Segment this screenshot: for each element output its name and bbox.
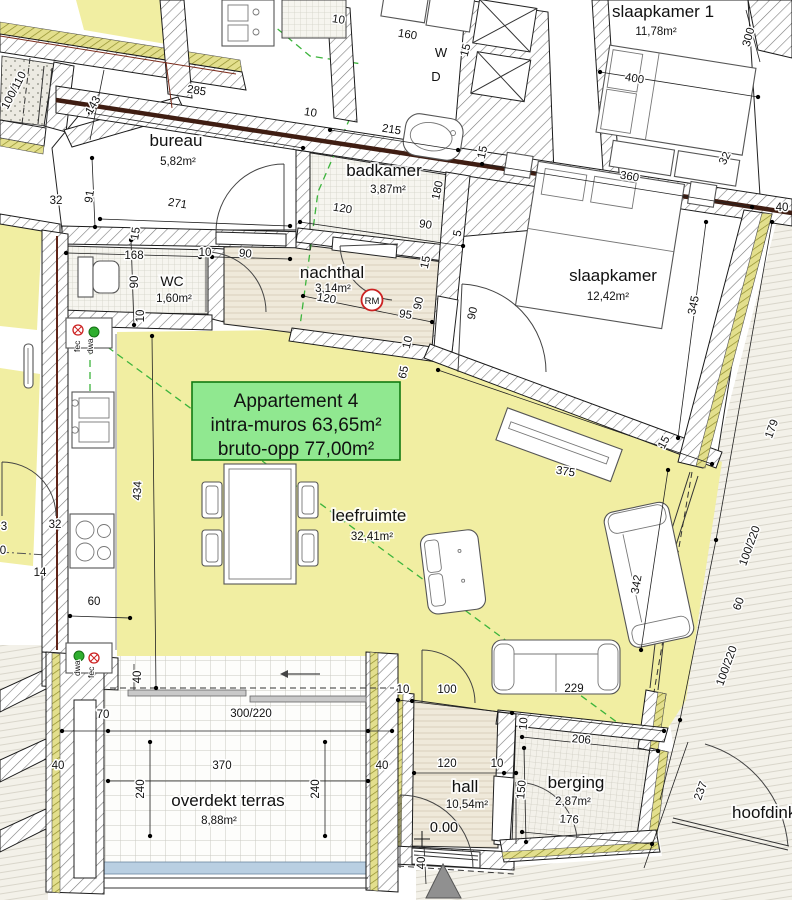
dimension-label: 240 (310, 779, 322, 798)
room-label-nachthal: nachthal (300, 263, 364, 282)
dimension-label: 370 (212, 760, 231, 772)
dimension-label: 32 (49, 519, 62, 531)
info-box: Appartement 4 intra-muros 63,65m² bruto-… (192, 382, 400, 460)
dimension-label: 10 (397, 684, 410, 696)
info-box-title: Appartement 4 (234, 391, 359, 412)
dimension-label: 90 (238, 247, 252, 260)
dimension-label: 90 (129, 276, 141, 289)
utility-label-dwa-bottom: dwa (72, 660, 82, 676)
room-label-berging: berging (548, 773, 605, 792)
dimension-label: 40 (416, 857, 428, 870)
utility-label-fec-top: fec (72, 340, 82, 352)
room-label-badkamer: badkamer (346, 161, 422, 180)
utility-label-fec-bottom: fec (86, 666, 96, 678)
room-area-slaapkamer1: 11,78m² (635, 26, 677, 38)
dimension-label: 0 (0, 545, 6, 557)
room-area-bureau: 5,82m² (160, 156, 196, 168)
dimension-label: 15 (129, 226, 143, 241)
room-area-badkamer: 3,87m² (370, 184, 406, 196)
radiator (24, 344, 33, 388)
room-label-bureau: bureau (150, 131, 203, 150)
dimension-label: 10 (517, 717, 530, 731)
neighbor-room-left-a (0, 222, 42, 330)
dimension-label: 206 (571, 733, 591, 747)
appliance-label-dryer: D (431, 69, 440, 84)
dimension-label: 14 (34, 567, 47, 579)
dimension-label: 176 (559, 814, 579, 827)
room-label-hoofdinkom: hoofdinkom (732, 803, 792, 822)
dimension-label: 150 (515, 780, 529, 800)
dimension-label: 40 (376, 760, 389, 772)
dimension-label: 10 (199, 247, 212, 259)
info-box-brutoopp: bruto-opp 77,00m² (218, 439, 374, 460)
dimension-label: 90 (418, 218, 433, 232)
floor-plan-drawing: bureau 5,82m² badkamer 3,87m² slaapkamer… (0, 0, 792, 900)
armchair (419, 529, 486, 615)
level-label: 0.00 (430, 820, 458, 836)
room-area-leefruimte: 32,41m² (351, 531, 393, 543)
dimension-label: 100 (437, 684, 456, 696)
room-area-slaapkamer: 12,42m² (587, 291, 629, 303)
dimension-label: 10 (135, 310, 147, 323)
dimension-label: 3 (1, 521, 7, 533)
dimension-label: 40 (52, 760, 65, 772)
dimension-label: 300/220 (230, 708, 272, 720)
room-label-hall: hall (452, 777, 478, 796)
dimension-label: 10 (303, 106, 318, 120)
room-area-hall: 10,54m² (446, 799, 488, 811)
dimension-label: 95 (398, 308, 413, 322)
stove (70, 514, 114, 568)
dimension-label: 168 (124, 250, 143, 262)
toilet (78, 257, 119, 297)
appliance-label-washer: W (435, 45, 448, 60)
room-area-terras: 8,88m² (201, 815, 237, 827)
dimension-label: 70 (97, 709, 110, 721)
dimension-label: 40 (132, 671, 144, 684)
terras-edge-strip (104, 862, 368, 874)
room-label-slaapkamer1: slaapkamer 1 (612, 2, 714, 21)
dimension-label: 10 (331, 13, 346, 27)
kitchen-sink (72, 392, 114, 448)
dimension-label: 32 (50, 195, 63, 207)
dimension-label: 40 (776, 202, 789, 214)
room-label-wc: WC (160, 273, 183, 289)
dimension-label: 240 (135, 779, 147, 798)
room-area-wc: 1,60m² (156, 293, 192, 305)
dimension-label: 60 (88, 596, 101, 608)
kitchen-sink-neighbor (222, 0, 274, 46)
floor-plan-page: bureau 5,82m² badkamer 3,87m² slaapkamer… (0, 0, 792, 900)
dimension-label: 434 (132, 480, 145, 500)
dimension-label: 120 (437, 758, 456, 770)
dimension-label: 91 (83, 189, 97, 204)
dimension-label: 10 (491, 758, 504, 770)
rm-badge-label: RM (365, 296, 380, 307)
sofa (492, 640, 620, 694)
room-label-leefruimte: leefruimte (332, 506, 407, 525)
room-label-slaapkamer: slaapkamer (569, 266, 657, 285)
info-box-intramuros: intra-muros 63,65m² (210, 415, 381, 436)
utility-label-dwa-top: dwa (85, 338, 95, 354)
room-label-terras: overdekt terras (171, 791, 284, 810)
neighbor-room-left-b (0, 368, 40, 566)
room-area-berging: 2,87m² (555, 796, 591, 808)
dimension-label: 229 (564, 683, 583, 695)
